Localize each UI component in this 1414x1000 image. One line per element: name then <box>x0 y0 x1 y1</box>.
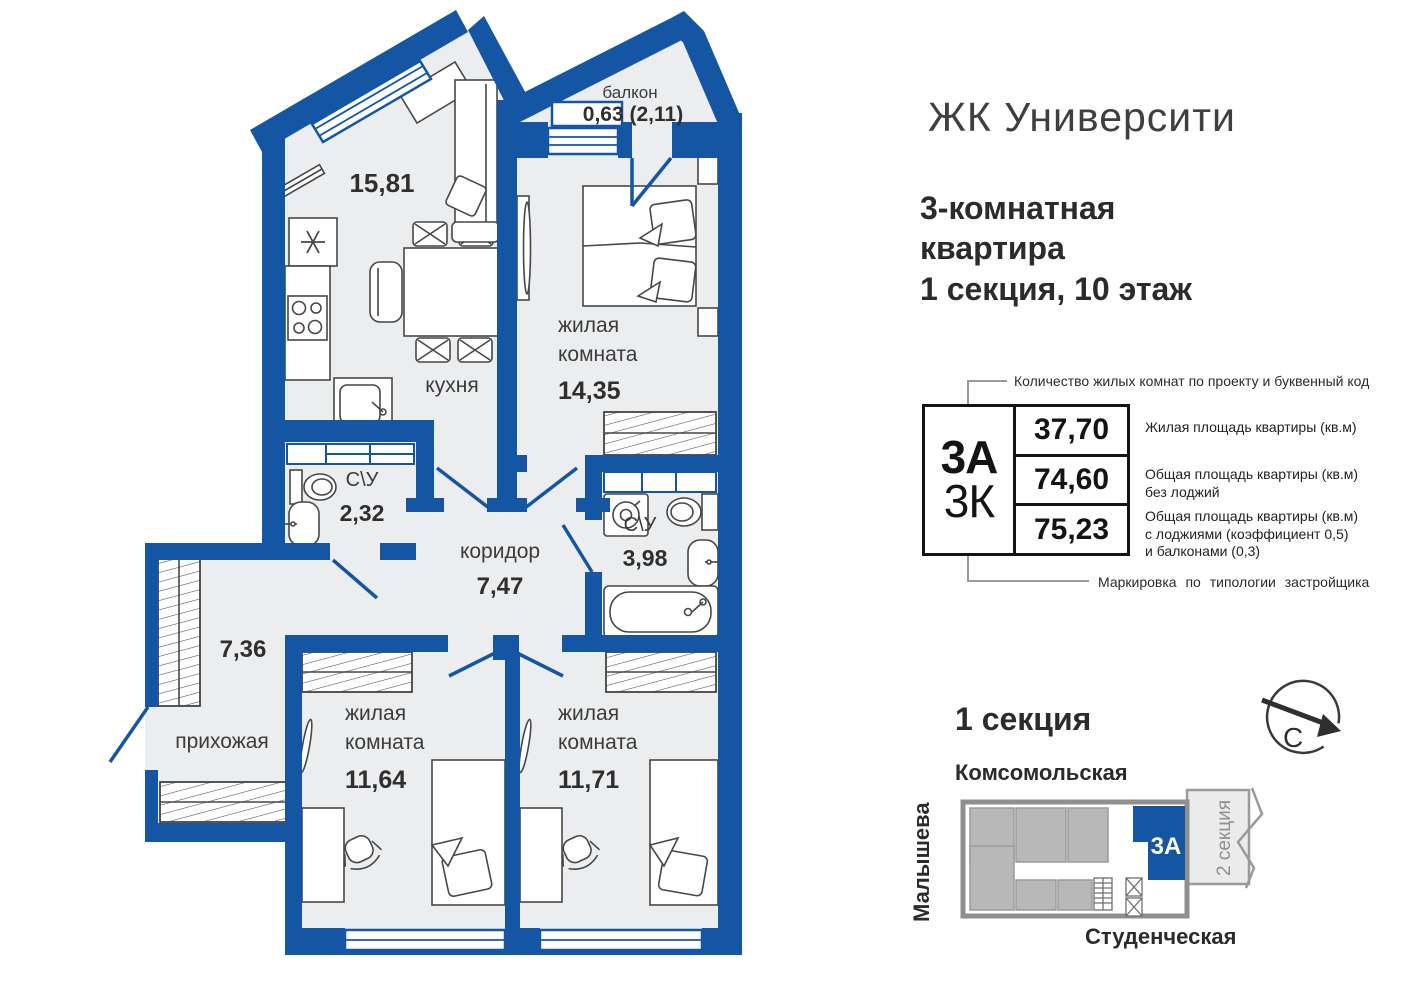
desc-line: Жилая площадь квартиры (кв.м) <box>1145 419 1357 437</box>
area-values: 37,70 74,60 75,23 <box>1016 407 1127 553</box>
bedroom-right-label: комната <box>558 731 638 754</box>
stove-icon <box>288 296 327 340</box>
wardrobe <box>606 652 716 692</box>
balcony-label: балкон <box>602 83 657 102</box>
page: { "header": { "brand": "ЖК Университи", … <box>0 0 1414 1000</box>
tv-bedroom-top-icon <box>517 196 531 300</box>
stairs-icon <box>1094 878 1112 910</box>
apartment-title: 3-комнатная квартира 1 секция, 10 этаж <box>920 188 1192 309</box>
bedroom-top-area: 14,35 <box>558 377 621 405</box>
apartment-code-alt: 3К <box>944 480 994 524</box>
apartment-cells <box>970 808 1108 910</box>
bedroom-top-label: комната <box>558 343 638 366</box>
desk <box>520 808 562 902</box>
total-area-value: 74,60 <box>1016 454 1127 504</box>
bedroom-right-area: 11,71 <box>558 766 619 794</box>
balcony-area: 0,63 (2,11) <box>583 103 683 126</box>
desc-line: Общая площадь квартиры (кв.м) <box>1145 466 1358 484</box>
total-area-with-balcony-value: 75,23 <box>1016 503 1127 553</box>
single-bed <box>650 760 718 905</box>
street-studencheskaya: Студенческая <box>1085 924 1236 949</box>
wardrobe <box>158 558 200 706</box>
compass-letter: С <box>1283 722 1303 753</box>
window-bedroom-right <box>540 930 702 950</box>
kitchen-area: 15,81 <box>349 168 414 198</box>
wc-small-label: С\У <box>346 469 379 491</box>
bedroom-top-label: жилая <box>558 314 619 337</box>
bedroom-right-label: жилая <box>558 702 619 725</box>
street-malysheva: Малышева <box>909 802 934 922</box>
desk <box>302 808 344 902</box>
desc-line: и балконами (0,3) <box>1145 543 1358 561</box>
wardrobe <box>160 782 286 822</box>
bedroom-left-label: жилая <box>345 702 406 725</box>
highlighted-unit-label: 3А <box>1151 833 1182 860</box>
vent-shaft <box>287 444 414 464</box>
hallway-label: прихожая <box>175 730 269 753</box>
site-plan: 1 секция С Комсомольская Малышева Студен… <box>900 640 1414 1000</box>
section-title: 1 секция <box>955 701 1091 737</box>
living-area-desc: Жилая площадь квартиры (кв.м) <box>1145 419 1357 437</box>
vent-shaft <box>604 472 716 492</box>
toilet-icon <box>667 494 718 530</box>
wardrobe <box>302 652 412 692</box>
section2-label: 2 секция <box>1214 800 1235 876</box>
wardrobe <box>604 412 716 455</box>
legend-connector <box>967 556 969 582</box>
apartment-title-line: 1 секция, 10 этаж <box>920 269 1192 309</box>
bedroom-left-label: комната <box>345 731 425 754</box>
wc-small-area: 2,32 <box>340 500 385 526</box>
kitchen-label: кухня <box>425 374 478 397</box>
double-bed <box>583 186 697 306</box>
desc-line: Общая площадь квартиры (кв.м) <box>1145 508 1358 526</box>
floor-plan: балкон 0,63 (2,11) 15,81 кухня жилая ком… <box>0 0 880 1000</box>
legend-connector <box>967 380 1007 382</box>
bedroom-left-area: 11,64 <box>345 766 406 794</box>
corridor-label: коридор <box>460 540 540 563</box>
single-bed <box>432 760 505 905</box>
sink-icon <box>688 540 718 586</box>
apartment-code: 3А <box>941 436 998 480</box>
desc-line: с лоджиями (коэффициент 0,5) <box>1145 526 1358 544</box>
wc-big-area: 3,98 <box>623 545 668 571</box>
nightstand <box>698 308 718 336</box>
project-title: ЖК Университи <box>928 94 1236 141</box>
bathtub-icon <box>604 586 718 638</box>
fridge-icon <box>289 218 337 266</box>
north-compass-icon: С <box>1262 681 1341 753</box>
street-komsomolskaya: Комсомольская <box>955 760 1128 785</box>
area-legend-table: 3А 3К 37,70 74,60 75,23 <box>922 404 1130 556</box>
hallway-area: 7,36 <box>220 636 267 663</box>
desc-line: без лоджий <box>1145 484 1358 502</box>
living-area-value: 37,70 <box>1016 407 1127 454</box>
wc-big-label: С\У <box>624 514 657 536</box>
apartment-title-line: 3-комнатная <box>920 188 1192 228</box>
apartment-code-cell: 3А 3К <box>925 407 1016 553</box>
building-footprint: 2 секция 3А <box>963 788 1262 916</box>
window-bedroom-left <box>345 930 505 950</box>
total-area-desc: Общая площадь квартиры (кв.м) без лоджий <box>1145 466 1358 501</box>
nightstand <box>698 156 718 184</box>
apartment-title-line: квартира <box>920 228 1192 268</box>
corridor-area: 7,47 <box>477 573 524 600</box>
total-area-with-balcony-desc: Общая площадь квартиры (кв.м) с лоджиями… <box>1145 508 1358 561</box>
legend-connector <box>967 580 1089 582</box>
legend-bottom-note: Маркировка по типологии застройщика <box>1098 574 1369 590</box>
legend-top-note: Количество жилых комнат по проекту и бук… <box>1014 373 1369 389</box>
legend-connector <box>967 380 969 404</box>
